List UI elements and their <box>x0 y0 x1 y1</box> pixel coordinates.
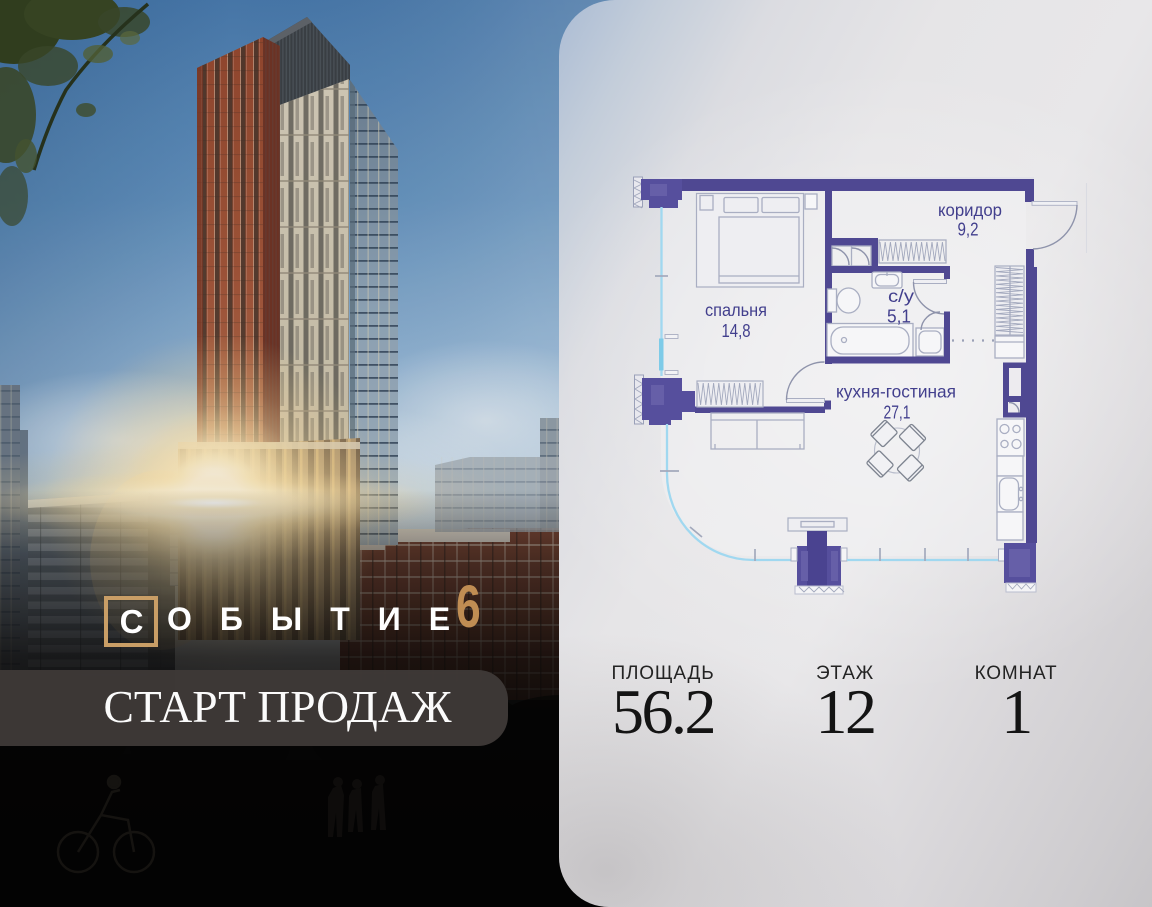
svg-text:5,1: 5,1 <box>887 306 911 327</box>
svg-text:с/у: с/у <box>888 286 914 306</box>
svg-text:9,2: 9,2 <box>958 219 979 240</box>
svg-text:коридор: коридор <box>938 200 1002 220</box>
svg-text:кухня-гостиная: кухня-гостиная <box>836 382 956 402</box>
svg-text:спальня: спальня <box>705 300 767 320</box>
svg-text:27,1: 27,1 <box>884 402 911 423</box>
svg-text:14,8: 14,8 <box>722 320 751 341</box>
